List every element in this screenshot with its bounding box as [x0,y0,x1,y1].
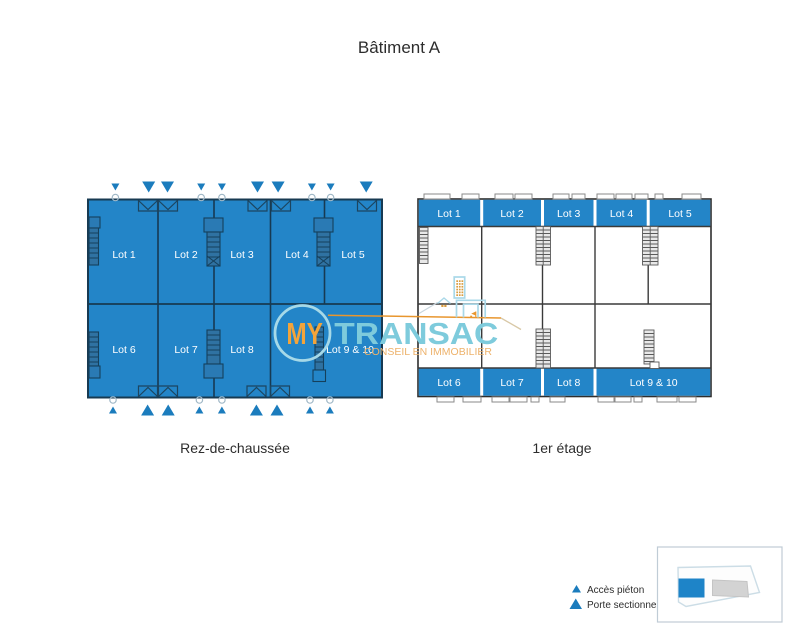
svg-text:Lot 1: Lot 1 [112,249,136,261]
svg-text:Accès piéton: Accès piéton [587,585,644,596]
svg-text:Lot 8: Lot 8 [557,377,581,389]
svg-text:Lot 1: Lot 1 [437,208,461,220]
svg-text:Lot 7: Lot 7 [500,377,524,389]
svg-text:Porte sectionnelle: Porte sectionnelle [587,600,667,611]
svg-text:Lot 4: Lot 4 [285,249,309,261]
svg-text:Lot 6: Lot 6 [437,377,461,389]
svg-text:Lot 9 & 10: Lot 9 & 10 [630,377,678,389]
svg-text:Bâtiment A: Bâtiment A [358,38,441,57]
svg-text:Rez-de-chaussée: Rez-de-chaussée [180,440,290,456]
svg-text:Lot 5: Lot 5 [341,249,365,261]
svg-text:Lot 7: Lot 7 [174,344,198,356]
svg-text:Lot 6: Lot 6 [112,344,136,356]
svg-text:Lot 2: Lot 2 [500,208,524,220]
svg-text:Lot 3: Lot 3 [557,208,581,220]
svg-text:Lot 5: Lot 5 [668,208,692,220]
svg-text:1er étage: 1er étage [532,440,591,456]
svg-text:Lot 2: Lot 2 [174,249,198,261]
svg-text:Lot 3: Lot 3 [230,249,254,261]
svg-text:Lot 4: Lot 4 [610,208,634,220]
svg-text:CONSEIL EN IMMOBILIER: CONSEIL EN IMMOBILIER [364,346,492,358]
svg-text:Lot 8: Lot 8 [230,344,254,356]
svg-text:MY: MY [286,316,323,351]
